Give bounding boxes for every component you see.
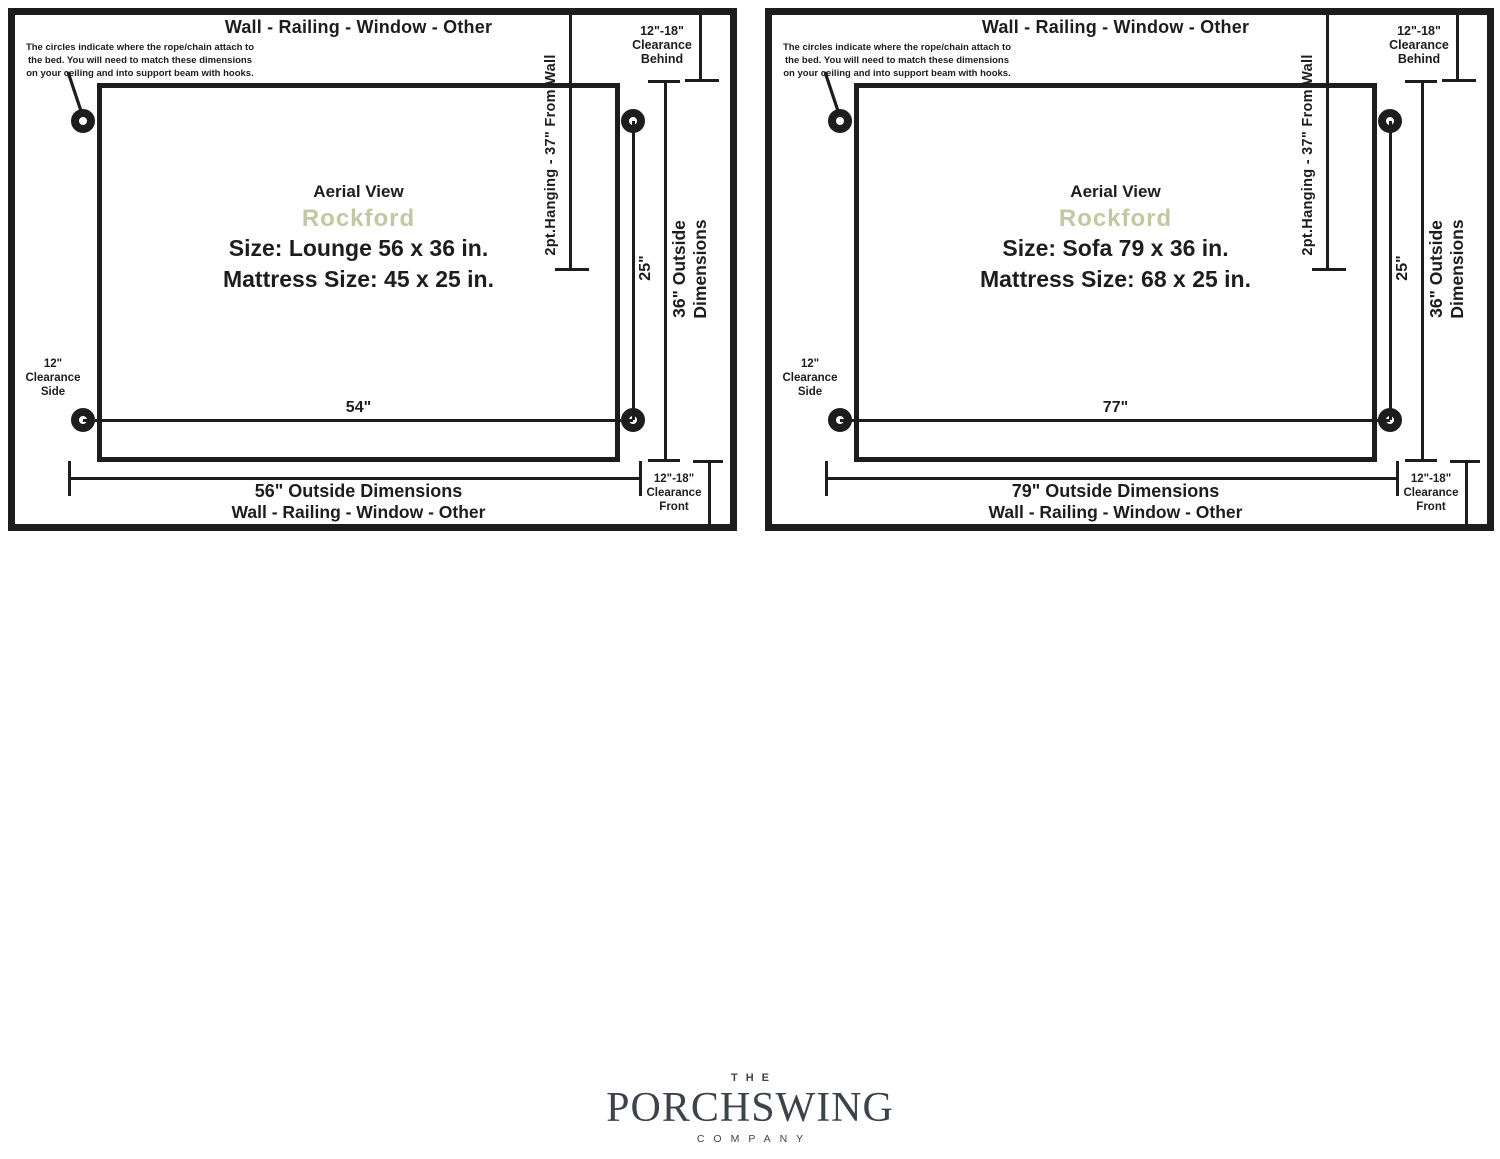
- clearance-front-label: 12"-18" Clearance Front: [634, 472, 714, 514]
- outside-width-label: 56" Outside Dimensions: [97, 481, 620, 502]
- aerial-view-label: Aerial View: [97, 180, 620, 204]
- model-name: Rockford: [97, 204, 620, 233]
- clearance-front-word: Front: [634, 500, 714, 514]
- clearance-front-tick: [693, 460, 723, 463]
- inner-width-label: 77": [854, 399, 1377, 417]
- clearance-front-word: Front: [1391, 500, 1471, 514]
- clearance-side-label: 12" Clearance Side: [15, 357, 91, 399]
- lounge-dimension-diagram: Wall - Railing - Window - Other The circ…: [8, 8, 737, 531]
- clearance-front-value: 12"-18": [634, 472, 714, 486]
- outside-width-dimension-line: [827, 477, 1398, 480]
- clearance-side-word: Clearance: [15, 371, 91, 385]
- product-info: Aerial View Rockford Size: Sofa 79 x 36 …: [854, 180, 1377, 295]
- wall-label-bottom: Wall - Railing - Window - Other: [854, 502, 1377, 523]
- outside-depth-label: 36" Outside Dimensions: [669, 169, 713, 369]
- clearance-behind-tick: [1442, 79, 1476, 82]
- product-info: Aerial View Rockford Size: Lounge 56 x 3…: [97, 180, 620, 295]
- clearance-behind-label: 12"-18" Clearance Behind: [1359, 24, 1479, 66]
- outside-depth-tick-top: [1405, 80, 1437, 83]
- logo-company: COMPANY: [0, 1133, 1500, 1145]
- outside-depth-line1: 36" Outside: [669, 169, 690, 369]
- bottom-labels: 79" Outside Dimensions Wall - Railing - …: [854, 481, 1377, 523]
- sofa-dimension-diagram: Wall - Railing - Window - Other The circ…: [765, 8, 1494, 531]
- inner-depth-dimension-line: [632, 121, 635, 420]
- clearance-behind-value: 12"-18": [602, 24, 722, 38]
- clearance-side-word: Side: [15, 385, 91, 399]
- outside-width-tick-left: [825, 461, 828, 496]
- logo-the: THE: [0, 1072, 1500, 1084]
- outside-depth-tick-bottom: [648, 459, 680, 462]
- outside-depth-dimension-line: [664, 81, 667, 462]
- inner-width-dimension-line: [840, 419, 1390, 422]
- clearance-behind-word: Clearance: [602, 38, 722, 52]
- clearance-front-value: 12"-18": [1391, 472, 1471, 486]
- inner-depth-label: 25": [1394, 238, 1414, 298]
- outside-depth-tick-top: [648, 80, 680, 83]
- size-label: Size: Sofa 79 x 36 in.: [854, 233, 1377, 264]
- outside-width-tick-left: [68, 461, 71, 496]
- inner-depth-dimension-line: [1389, 121, 1392, 420]
- outside-depth-line1: 36" Outside: [1426, 169, 1447, 369]
- attachment-point-circle: [828, 109, 852, 133]
- mattress-size-label: Mattress Size: 45 x 25 in.: [97, 264, 620, 295]
- inner-width-dimension-line: [83, 419, 633, 422]
- clearance-front-label: 12"-18" Clearance Front: [1391, 472, 1471, 514]
- clearance-behind-label: 12"-18" Clearance Behind: [602, 24, 722, 66]
- outside-depth-tick-bottom: [1405, 459, 1437, 462]
- bottom-labels: 56" Outside Dimensions Wall - Railing - …: [97, 481, 620, 523]
- outside-depth-label: 36" Outside Dimensions: [1426, 169, 1470, 369]
- clearance-behind-word: Behind: [602, 52, 722, 66]
- clearance-side-value: 12": [15, 357, 91, 371]
- clearance-front-word: Clearance: [634, 486, 714, 500]
- clearance-front-tick: [1450, 460, 1480, 463]
- size-label: Size: Lounge 56 x 36 in.: [97, 233, 620, 264]
- wall-label-bottom: Wall - Railing - Window - Other: [97, 502, 620, 523]
- outside-width-label: 79" Outside Dimensions: [854, 481, 1377, 502]
- outside-width-dimension-line: [70, 477, 641, 480]
- mattress-size-label: Mattress Size: 68 x 25 in.: [854, 264, 1377, 295]
- outside-depth-line2: Dimensions: [1447, 169, 1468, 369]
- clearance-side-word: Side: [772, 385, 848, 399]
- clearance-behind-value: 12"-18": [1359, 24, 1479, 38]
- clearance-side-value: 12": [772, 357, 848, 371]
- porchswing-company-logo: THE PORCHSWING COMPANY: [0, 1072, 1500, 1145]
- attachment-point-circle: [71, 109, 95, 133]
- page: Wall - Railing - Window - Other The circ…: [0, 0, 1500, 1159]
- inner-width-label: 54": [97, 399, 620, 417]
- outside-depth-dimension-line: [1421, 81, 1424, 462]
- clearance-behind-word: Clearance: [1359, 38, 1479, 52]
- model-name: Rockford: [854, 204, 1377, 233]
- outside-depth-line2: Dimensions: [690, 169, 711, 369]
- clearance-behind-tick: [685, 79, 719, 82]
- clearance-behind-word: Behind: [1359, 52, 1479, 66]
- logo-name: PORCHSWING: [0, 1086, 1500, 1130]
- clearance-front-word: Clearance: [1391, 486, 1471, 500]
- clearance-side-label: 12" Clearance Side: [772, 357, 848, 399]
- inner-depth-label: 25": [637, 238, 657, 298]
- clearance-side-word: Clearance: [772, 371, 848, 385]
- aerial-view-label: Aerial View: [854, 180, 1377, 204]
